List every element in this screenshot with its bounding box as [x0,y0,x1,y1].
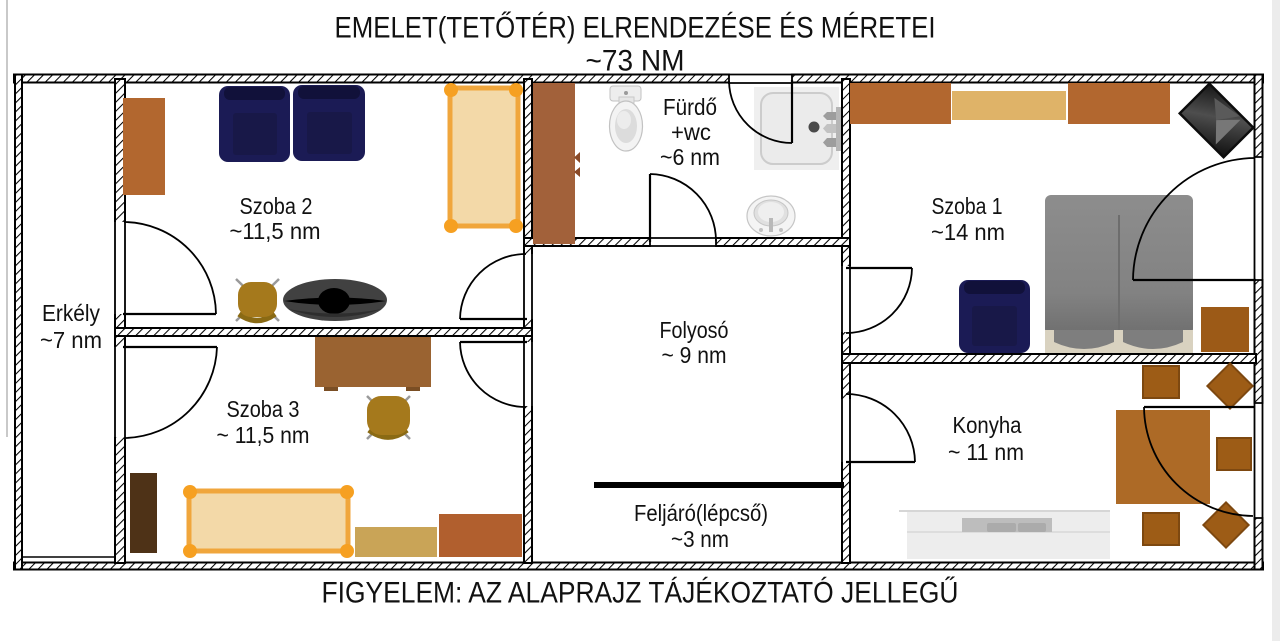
svg-text:~7 nm: ~7 nm [40,327,102,353]
svg-text:Erkély: Erkély [42,300,100,326]
svg-text:+wc: +wc [671,119,711,145]
svg-text:~3 nm: ~3 nm [671,526,729,552]
svg-text:~ 11 nm: ~ 11 nm [948,439,1024,465]
svg-text:Folyosó: Folyosó [660,317,729,343]
svg-text:~73 NM: ~73 NM [586,45,685,78]
svg-text:EMELET(TETŐTÉR) ELRENDEZÉSE ÉS: EMELET(TETŐTÉR) ELRENDEZÉSE ÉS MÉRETEI [335,12,936,45]
svg-text:~11,5 nm: ~11,5 nm [230,218,321,244]
svg-text:~ 9 nm: ~ 9 nm [662,342,727,368]
svg-text:Szoba 3: Szoba 3 [227,396,300,422]
svg-text:~6 nm: ~6 nm [660,144,720,170]
svg-text:FIGYELEM: AZ ALAPRAJZ TÁJÉKOZT: FIGYELEM: AZ ALAPRAJZ TÁJÉKOZTATÓ JELLEG… [322,577,959,610]
svg-text:Szoba 1: Szoba 1 [932,193,1003,219]
svg-text:Fürdő: Fürdő [663,94,717,120]
svg-text:~14 nm: ~14 nm [931,219,1005,245]
svg-text:Szoba 2: Szoba 2 [240,193,313,219]
svg-text:Feljáró(lépcső): Feljáró(lépcső) [634,500,768,526]
svg-text:~ 11,5 nm: ~ 11,5 nm [217,422,310,448]
svg-text:Konyha: Konyha [953,412,1022,438]
